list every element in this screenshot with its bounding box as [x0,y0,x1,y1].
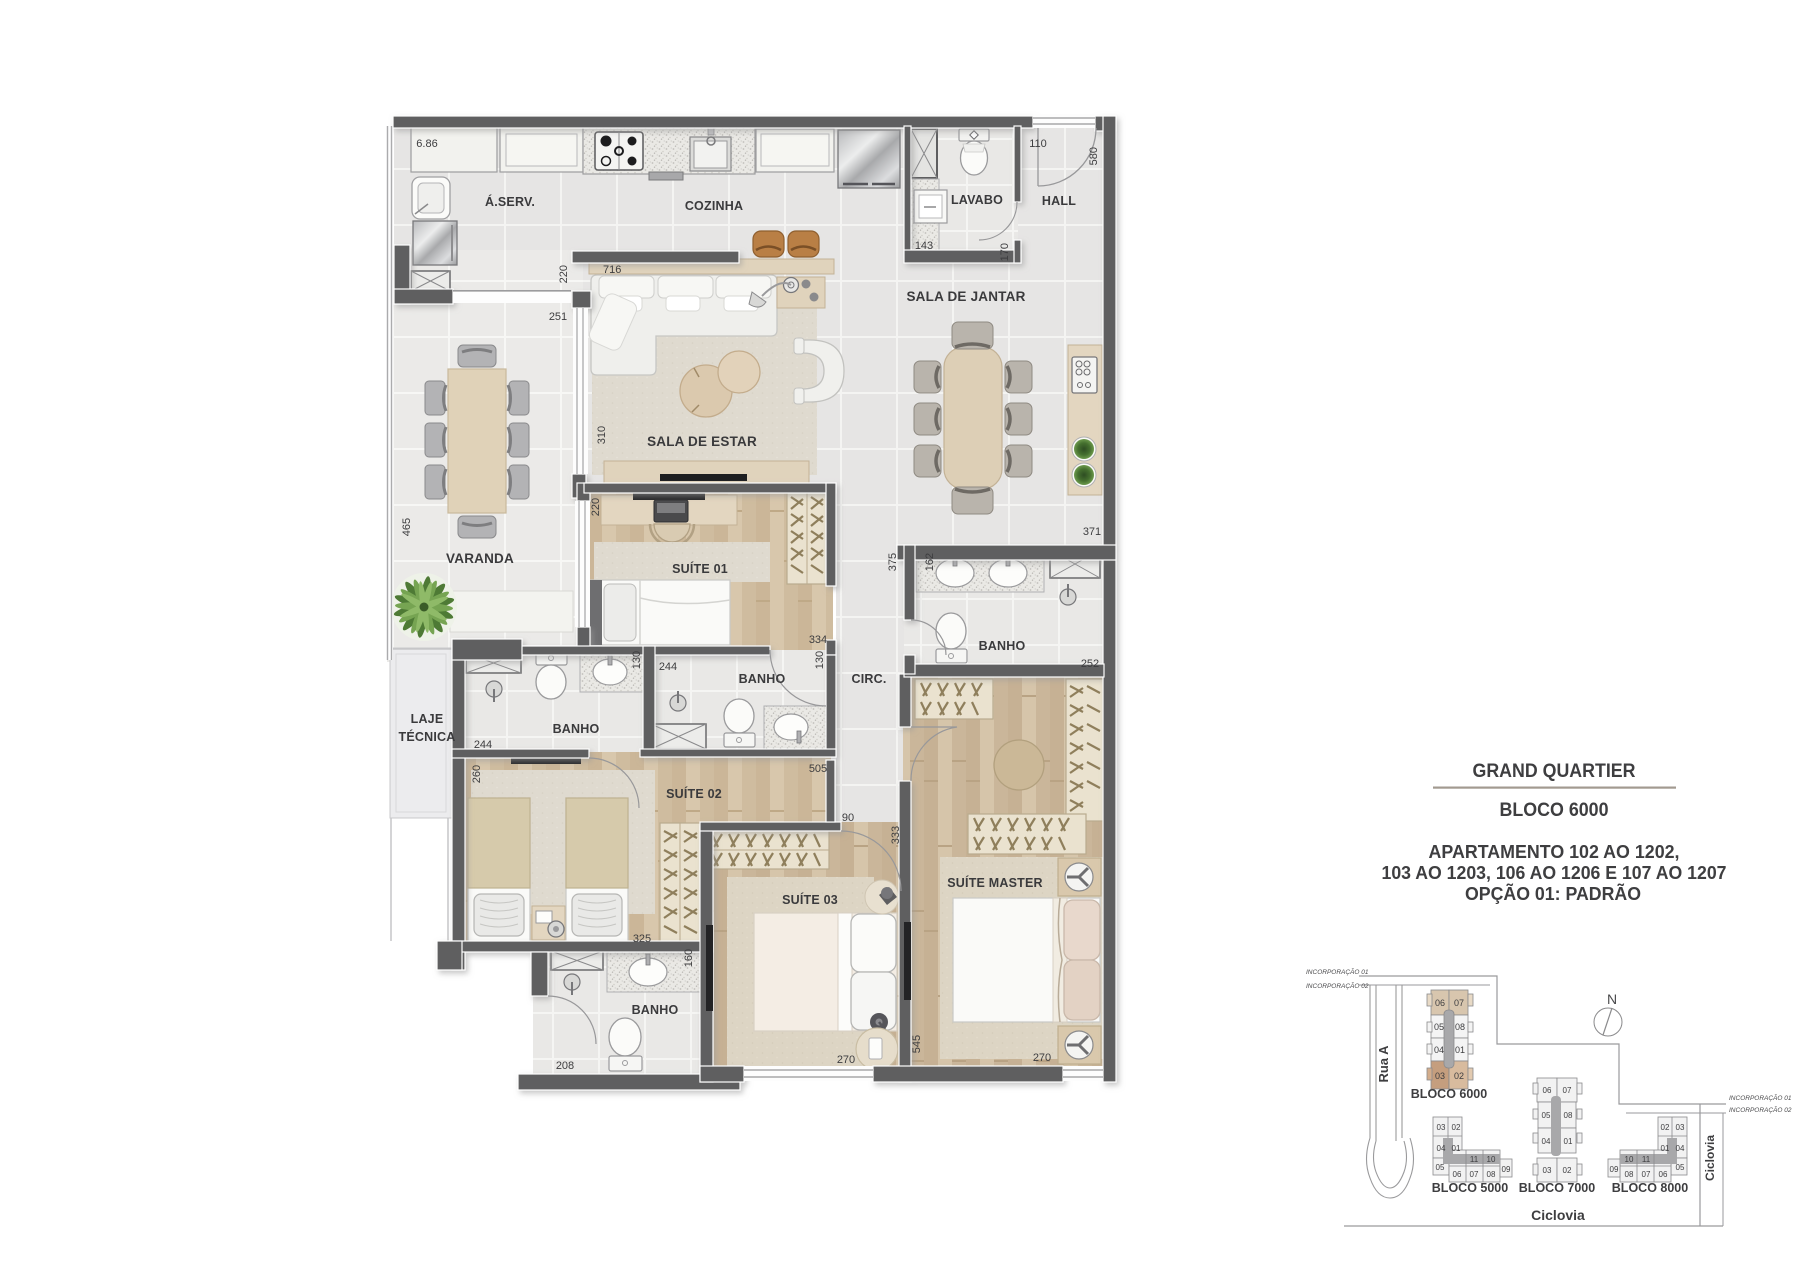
svg-text:02: 02 [1452,1123,1461,1132]
svg-text:SALA DE JANTAR: SALA DE JANTAR [906,289,1025,304]
svg-text:LAVABO: LAVABO [951,193,1003,207]
svg-text:BANHO: BANHO [979,639,1026,653]
svg-text:06: 06 [1659,1170,1668,1179]
svg-text:06: 06 [1543,1086,1552,1095]
svg-text:BLOCO 7000: BLOCO 7000 [1519,1181,1595,1195]
svg-text:07: 07 [1454,998,1464,1008]
svg-text:220: 220 [590,498,602,516]
svg-text:05: 05 [1676,1163,1685,1172]
svg-text:545: 545 [911,1035,923,1053]
svg-text:INCORPORAÇÃO 02: INCORPORAÇÃO 02 [1729,1105,1792,1114]
svg-text:270: 270 [1033,1052,1051,1064]
svg-text:11: 11 [1642,1155,1651,1164]
svg-text:07: 07 [1470,1170,1479,1179]
svg-text:BLOCO 5000: BLOCO 5000 [1432,1181,1508,1195]
svg-text:220: 220 [558,265,570,283]
svg-text:244: 244 [474,739,492,751]
svg-text:244: 244 [659,661,677,673]
svg-text:HALL: HALL [1042,194,1076,208]
svg-text:251: 251 [549,311,567,323]
svg-text:07: 07 [1642,1170,1651,1179]
svg-text:GRAND QUARTIER: GRAND QUARTIER [1473,761,1636,782]
svg-text:10: 10 [1487,1155,1496,1164]
svg-text:580: 580 [1088,147,1100,165]
svg-text:04: 04 [1676,1144,1685,1153]
svg-text:03: 03 [1543,1166,1552,1175]
svg-text:90: 90 [842,812,854,824]
svg-text:160: 160 [683,949,695,967]
svg-text:LAJE: LAJE [411,712,444,726]
svg-text:SALA DE ESTAR: SALA DE ESTAR [647,434,757,449]
svg-text:08: 08 [1455,1022,1465,1032]
svg-text:BANHO: BANHO [632,1003,679,1017]
svg-text:371: 371 [1083,526,1101,538]
svg-text:Ciclovia: Ciclovia [1703,1135,1717,1181]
svg-text:11: 11 [1470,1155,1479,1164]
svg-text:03: 03 [1437,1123,1446,1132]
svg-text:INCORPORAÇÃO 01: INCORPORAÇÃO 01 [1306,967,1369,976]
svg-text:02: 02 [1454,1071,1464,1081]
svg-text:333: 333 [890,826,902,844]
svg-text:465: 465 [401,518,413,536]
svg-text:04: 04 [1542,1137,1551,1146]
svg-text:03: 03 [1676,1123,1685,1132]
svg-text:OPÇÃO 01: PADRÃO: OPÇÃO 01: PADRÃO [1465,883,1641,904]
svg-text:05: 05 [1436,1163,1445,1172]
svg-text:04: 04 [1434,1045,1444,1055]
svg-text:325: 325 [633,933,651,945]
svg-text:Rua A: Rua A [1376,1045,1391,1083]
svg-text:05: 05 [1542,1111,1551,1120]
svg-text:05: 05 [1434,1022,1444,1032]
svg-text:TÉCNICA: TÉCNICA [399,729,456,744]
svg-text:143: 143 [915,240,933,252]
svg-text:162: 162 [924,553,936,571]
svg-text:270: 270 [837,1054,855,1066]
svg-text:10: 10 [1625,1155,1634,1164]
svg-text:BANHO: BANHO [739,672,786,686]
svg-text:COZINHA: COZINHA [685,199,743,213]
svg-text:SUÍTE 02: SUÍTE 02 [666,786,722,801]
svg-text:08: 08 [1625,1170,1634,1179]
svg-text:310: 310 [596,426,608,444]
svg-text:INCORPORAÇÃO 02: INCORPORAÇÃO 02 [1306,981,1369,990]
svg-text:02: 02 [1563,1166,1572,1175]
svg-text:SUÍTE MASTER: SUÍTE MASTER [947,875,1042,890]
svg-text:505: 505 [809,763,827,775]
svg-text:BLOCO 6000: BLOCO 6000 [1500,800,1609,821]
svg-text:APARTAMENTO 102 AO 1202,: APARTAMENTO 102 AO 1202, [1429,841,1680,862]
svg-text:SUÍTE 03: SUÍTE 03 [782,892,838,907]
svg-text:01: 01 [1564,1137,1573,1146]
svg-text:110: 110 [1029,138,1047,150]
svg-text:INCORPORAÇÃO 01: INCORPORAÇÃO 01 [1729,1093,1792,1102]
svg-text:130: 130 [814,651,826,669]
svg-text:06: 06 [1453,1170,1462,1179]
svg-text:252: 252 [1081,658,1099,670]
svg-text:BLOCO 6000: BLOCO 6000 [1411,1087,1487,1101]
svg-text:06: 06 [1435,998,1445,1008]
svg-text:09: 09 [1502,1165,1511,1174]
svg-text:08: 08 [1487,1170,1496,1179]
svg-text:07: 07 [1563,1086,1572,1095]
svg-text:09: 09 [1610,1165,1619,1174]
svg-text:Ciclovia: Ciclovia [1531,1207,1585,1223]
svg-text:260: 260 [471,765,483,783]
svg-text:130: 130 [631,651,643,669]
svg-text:BANHO: BANHO [553,722,600,736]
svg-text:VARANDA: VARANDA [446,551,514,566]
svg-text:02: 02 [1661,1123,1670,1132]
svg-text:N: N [1607,991,1617,1007]
svg-text:01: 01 [1452,1144,1461,1153]
svg-text:103 AO 1203, 106 AO 1206 E 107: 103 AO 1203, 106 AO 1206 E 107 AO 1207 [1382,862,1727,883]
svg-text:6.86: 6.86 [416,138,437,150]
svg-text:BLOCO 8000: BLOCO 8000 [1612,1181,1688,1195]
svg-text:375: 375 [887,553,899,571]
svg-text:716: 716 [603,264,621,276]
svg-text:01: 01 [1455,1045,1465,1055]
svg-text:170: 170 [999,243,1011,261]
svg-text:CIRC.: CIRC. [851,672,886,686]
svg-text:208: 208 [556,1060,574,1072]
svg-text:01: 01 [1661,1144,1670,1153]
svg-text:08: 08 [1564,1111,1573,1120]
svg-text:03: 03 [1435,1071,1445,1081]
svg-text:334: 334 [809,634,827,646]
svg-text:SUÍTE 01: SUÍTE 01 [672,561,728,576]
svg-text:Á.SERV.: Á.SERV. [485,194,535,209]
svg-text:04: 04 [1437,1144,1446,1153]
